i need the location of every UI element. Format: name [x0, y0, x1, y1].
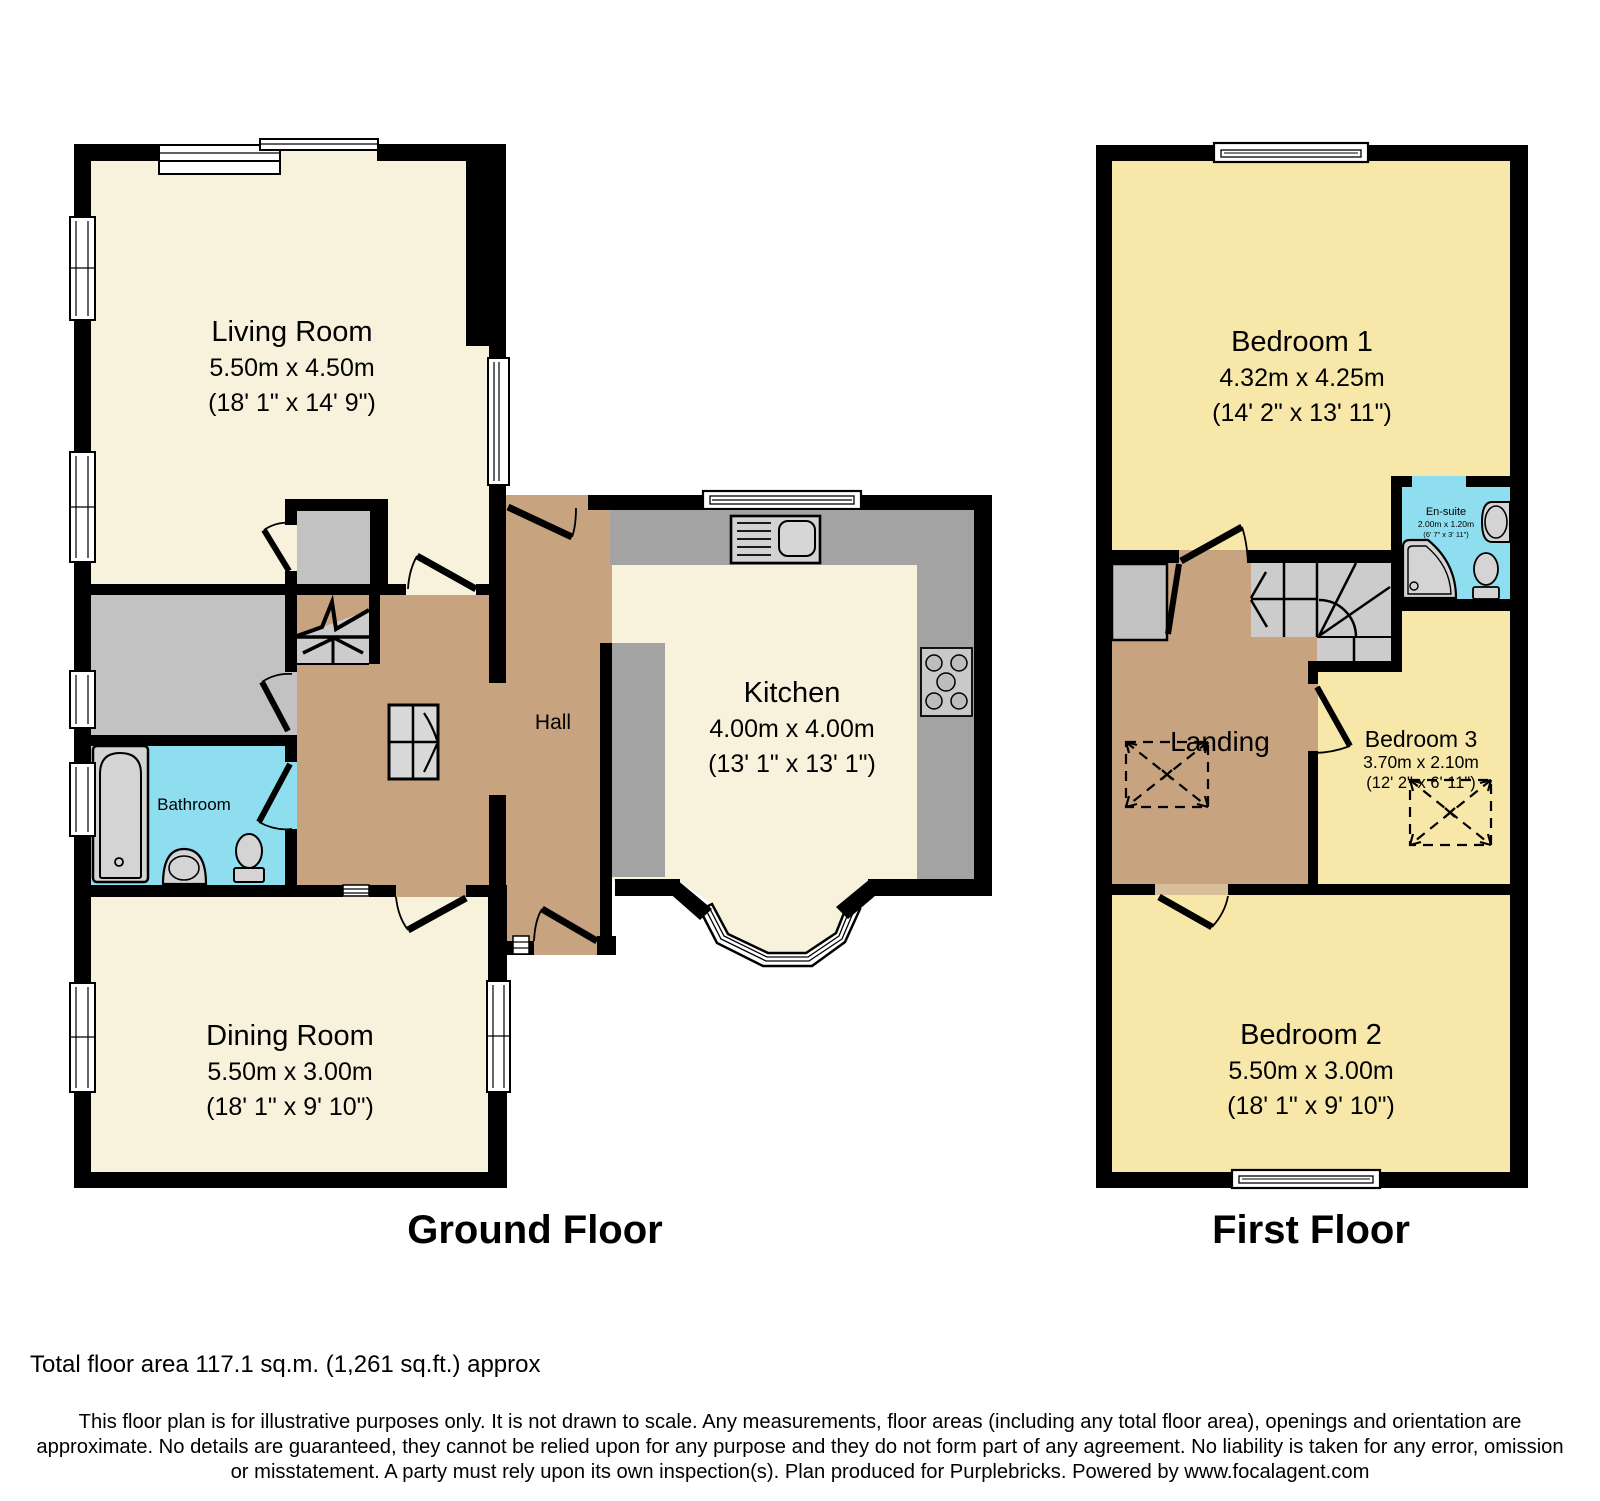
svg-text:Hall: Hall	[535, 711, 571, 734]
svg-text:(18' 1" x 9' 10"): (18' 1" x 9' 10")	[206, 1093, 374, 1121]
svg-text:Kitchen: Kitchen	[744, 677, 841, 709]
svg-text:Bedroom 2: Bedroom 2	[1240, 1019, 1382, 1051]
svg-text:Bedroom 3: Bedroom 3	[1365, 726, 1478, 752]
svg-text:3.70m x 2.10m: 3.70m x 2.10m	[1363, 752, 1479, 772]
svg-text:approximate. No details are gu: approximate. No details are guaranteed, …	[36, 1436, 1563, 1458]
svg-text:Total floor area 117.1 sq.m. (: Total floor area 117.1 sq.m. (1,261 sq.f…	[30, 1351, 541, 1378]
svg-text:Landing: Landing	[1170, 726, 1270, 757]
svg-text:(14' 2" x 13' 11"): (14' 2" x 13' 11")	[1212, 399, 1392, 427]
svg-text:Living Room: Living Room	[211, 316, 372, 348]
svg-text:5.50m x 4.50m: 5.50m x 4.50m	[209, 354, 374, 382]
svg-text:Dining Room: Dining Room	[206, 1020, 374, 1052]
svg-text:(6' 7" x 3' 11"): (6' 7" x 3' 11")	[1423, 530, 1469, 539]
svg-text:or misstatement. A party must: or misstatement. A party must rely upon …	[231, 1461, 1370, 1483]
svg-text:Ground Floor: Ground Floor	[407, 1208, 663, 1252]
svg-text:(13' 1" x 13' 1"): (13' 1" x 13' 1")	[708, 750, 876, 778]
svg-text:(18' 1" x 14' 9"): (18' 1" x 14' 9")	[208, 389, 376, 417]
svg-text:2.00m x 1.20m: 2.00m x 1.20m	[1418, 519, 1474, 529]
svg-text:En-suite: En-suite	[1426, 506, 1466, 518]
svg-text:Bathroom: Bathroom	[157, 795, 231, 814]
svg-text:This floor plan is for illustr: This floor plan is for illustrative purp…	[79, 1411, 1522, 1433]
svg-text:5.50m x 3.00m: 5.50m x 3.00m	[1228, 1057, 1393, 1085]
svg-text:First Floor: First Floor	[1212, 1208, 1410, 1252]
svg-text:4.32m x 4.25m: 4.32m x 4.25m	[1219, 364, 1384, 392]
svg-text:4.00m x 4.00m: 4.00m x 4.00m	[709, 715, 874, 743]
svg-text:(12' 2" x 6' 11"): (12' 2" x 6' 11")	[1366, 774, 1475, 792]
svg-text:5.50m x 3.00m: 5.50m x 3.00m	[207, 1058, 372, 1086]
svg-text:Bedroom 1: Bedroom 1	[1231, 326, 1373, 358]
svg-text:(18' 1" x 9' 10"): (18' 1" x 9' 10")	[1227, 1092, 1395, 1120]
